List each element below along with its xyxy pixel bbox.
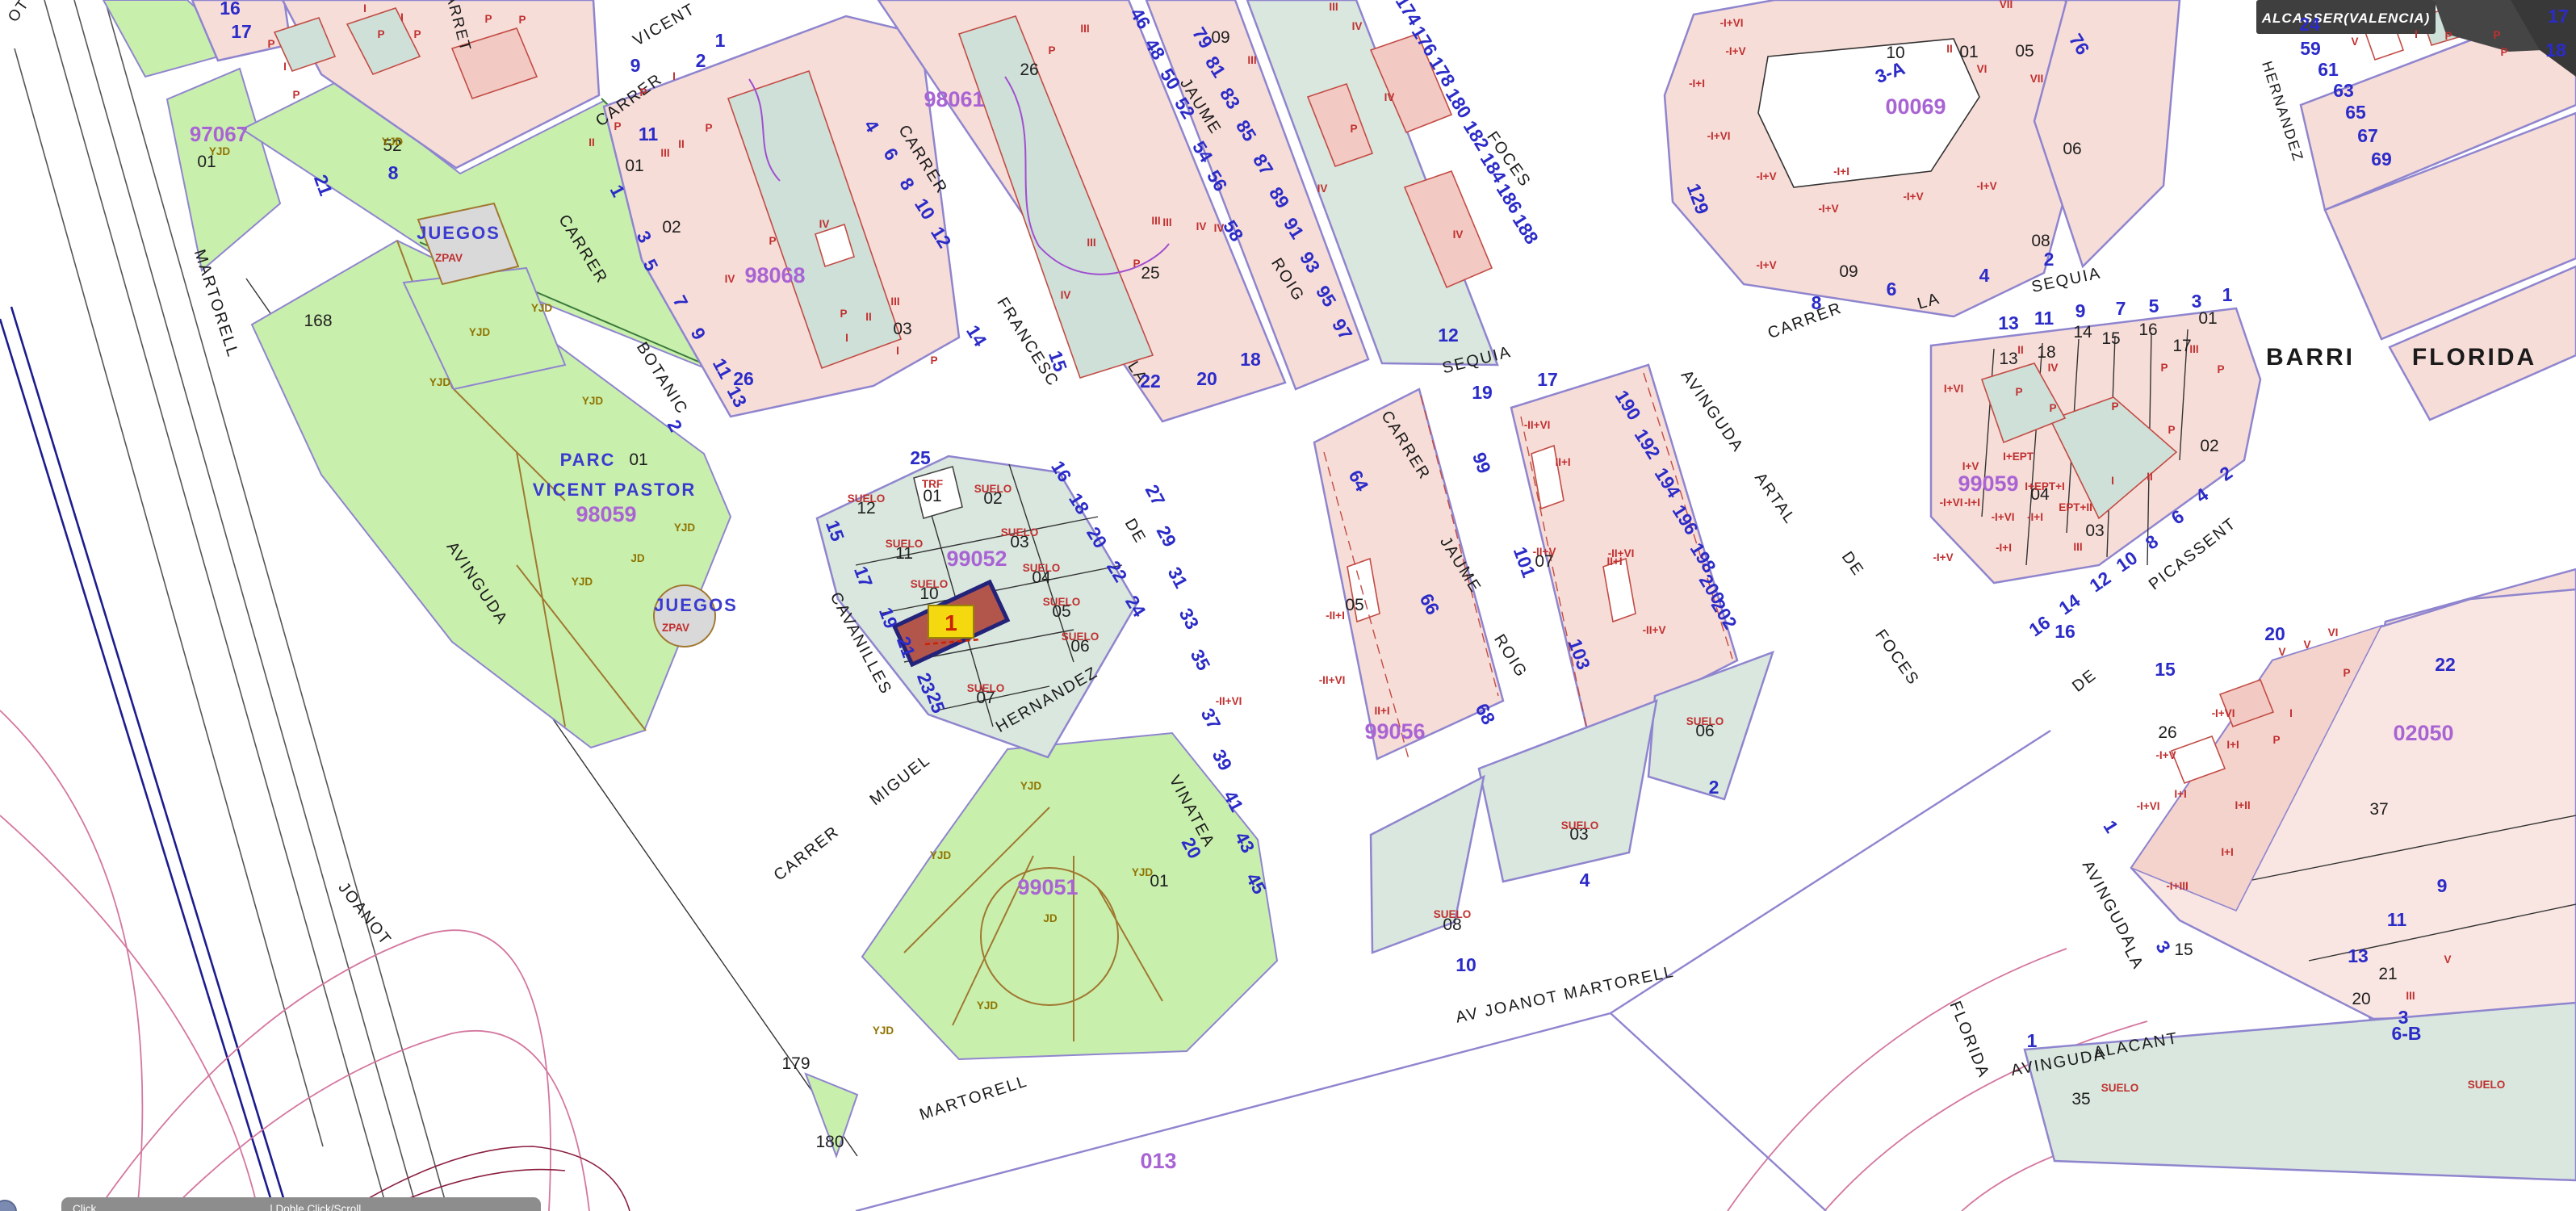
names-blue-label: JUEGOS (654, 595, 738, 615)
cadastral-map-canvas[interactable]: 1 ALCASSER(VALENCIA) CARRETMARTORELLAVIN… (0, 0, 2576, 1211)
landuse-red-label: TRF (922, 478, 943, 490)
landuse-red-label: I (2415, 28, 2418, 40)
hint-text-right: | Doble Click/Scroll (270, 1203, 361, 1211)
landuse-red-label: IV (1196, 220, 1207, 233)
landuse-red-label: -I+VI (1707, 130, 1731, 142)
numbers-blue-label: 26 (733, 368, 754, 389)
numbers-blue-label: 17 (231, 21, 252, 42)
numbers-blue-label: 59 (2300, 38, 2321, 59)
landuse-red-label: SUELO (1686, 715, 1724, 727)
numbers-blue-label: 8 (388, 162, 399, 183)
landuse-red-label: II+I (1555, 456, 1570, 468)
parcels-black-label: 168 (304, 312, 332, 330)
parcels-black-label: 179 (781, 1054, 810, 1073)
numbers-blue-label: 6-B (2391, 1023, 2421, 1044)
landuse-red-label: P (840, 308, 847, 320)
landuse-red-label: -II+VI (1319, 674, 1346, 686)
landuse-red-label: IV (1214, 222, 1225, 234)
streets-label: AVINGUDA (1678, 367, 1747, 456)
parcels-black-label: 15 (2101, 329, 2120, 348)
landuse-red-label: P (2168, 424, 2175, 436)
landuse-red-label: P (930, 354, 937, 367)
landuse-olive-label: JD (1043, 912, 1058, 924)
parcels-black-label: 26 (2158, 723, 2176, 742)
numbers-blue-label: 15 (2155, 659, 2176, 680)
landuse-red-label: -I+III (2166, 880, 2188, 892)
landuse-olive-label: YJD (572, 576, 593, 588)
numbers-blue-label: 69 (2371, 149, 2392, 170)
codes-purple-label: 99052 (946, 547, 1007, 571)
parcels-black-label: 10 (1886, 44, 1904, 62)
landuse-red-label: -I+VI (1992, 511, 2015, 523)
numbers-blue-label: 67 (2357, 125, 2378, 146)
streets-label: HERNANDEZ (2259, 59, 2306, 164)
numbers-blue-label: 27 (1141, 481, 1170, 509)
streets-label: DE (2069, 666, 2101, 696)
landuse-red-label: -I+I (1996, 542, 2012, 554)
landuse-red-label: III (2406, 990, 2415, 1002)
landuse-red-label: I+I (2221, 846, 2233, 858)
codes-purple-label: 99059 (1958, 471, 2018, 496)
numbers-blue-label: 24 (2299, 14, 2320, 35)
numbers-blue-label: 2 (696, 50, 706, 71)
landuse-olive-label: YJD (873, 1025, 894, 1037)
numbers-blue-label: 1 (715, 30, 726, 51)
streets-label: OT (5, 0, 33, 25)
landuse-red-label: -II+V (1533, 546, 1556, 558)
landuse-red-label: I (2111, 475, 2114, 487)
landuse-red-label: I+VI (1944, 383, 1963, 395)
numbers-blue-label: 2 (1709, 777, 1719, 798)
numbers-blue-label: 11 (639, 124, 659, 145)
numbers-blue-label: 4 (1580, 869, 1590, 890)
numbers-blue-label: 182 (1460, 117, 1493, 154)
landuse-red-label: -II+VI (1216, 695, 1242, 707)
parcels-black-label: 09 (1211, 28, 1229, 47)
landuse-red-label: I (400, 11, 404, 23)
parcels-black-label: 25 (1141, 264, 1159, 283)
landuse-red-label: SUELO (2468, 1079, 2506, 1091)
landuse-red-label: P (413, 28, 421, 40)
numbers-blue-label: 99 (1468, 450, 1495, 476)
numbers-blue-label: 16 (2055, 621, 2075, 642)
landuse-red-label: IV (725, 273, 735, 285)
numbers-blue-label: 10 (1456, 954, 1476, 975)
numbers-blue-label: 8 (1812, 292, 1822, 313)
streets-label: MIGUEL (867, 751, 934, 809)
landuse-red-label: VI (2328, 626, 2339, 639)
parcels-black-label: 37 (2369, 800, 2388, 819)
landuse-red-label: III (2073, 541, 2082, 553)
parcels-black-label: 180 (815, 1133, 844, 1151)
landuse-red-label: -I+V (1903, 191, 1923, 203)
landuse-red-label: P (484, 13, 492, 25)
streets-label: MARTORELL (917, 1072, 1030, 1124)
landuse-red-label: -I+VI (2212, 707, 2235, 719)
numbers-blue-label: 11 (2034, 308, 2055, 329)
landuse-red-label: -I+V (1756, 259, 1776, 271)
codes-purple-label: 99051 (1017, 875, 1078, 899)
landuse-olive-label: YJD (582, 395, 604, 407)
numbers-blue-label: 63 (2333, 80, 2354, 101)
landuse-red-label: III (2189, 343, 2198, 355)
landuse-olive-label: YJD (209, 145, 231, 157)
numbers-blue-label: 29 (1153, 522, 1181, 551)
landuse-red-label: -I+V (1818, 203, 1838, 215)
parcels-black-label: 08 (2031, 232, 2050, 250)
numbers-blue-label: 16 (220, 0, 241, 19)
landuse-red-label: P (1350, 123, 1357, 135)
parcels-black-label: 03 (2085, 522, 2104, 540)
landuse-red-label: P (2500, 46, 2507, 58)
numbers-blue-label: 37 (1197, 705, 1225, 733)
landuse-red-label: P (705, 122, 712, 134)
landuse-red-label: III (660, 147, 669, 159)
landuse-red-label: -I+VI (2137, 800, 2160, 812)
numbers-blue-label: 61 (2318, 59, 2339, 80)
suelo-parcel-03[interactable] (1479, 701, 1657, 882)
streets-label: PICASSENT (2146, 514, 2240, 593)
parcels-black-label: 13 (1999, 350, 2017, 368)
landuse-red-label: -II+VI (1524, 419, 1551, 431)
numbers-blue-label: 14 (962, 321, 991, 350)
landuse-red-label: SUELO (967, 682, 1005, 694)
selected-parcel-number: 1 (945, 610, 957, 635)
map-hint-tooltip: Click | Doble Click/Scroll (61, 1197, 541, 1211)
numbers-blue-label: 9 (630, 55, 641, 76)
numbers-blue-label: 7 (2116, 298, 2126, 319)
numbers-blue-label: 1 (2027, 1030, 2038, 1051)
landuse-olive-label: YJD (382, 136, 404, 148)
parcels-black-label: 15 (2174, 941, 2193, 959)
codes-purple-label: 013 (1140, 1149, 1176, 1173)
landuse-red-label: III (1329, 1, 1338, 13)
landuse-red-label: P (2444, 30, 2452, 42)
landuse-olive-label: YJD (429, 376, 451, 388)
landuse-red-label: P (2493, 29, 2500, 41)
landuse-red-label: III (1087, 237, 1095, 249)
parcels-black-label: 09 (1839, 262, 1858, 281)
streets-label: FRANCESC (993, 295, 1062, 391)
landuse-red-label: SUELO (1434, 908, 1472, 920)
parcels-black-label: 14 (2073, 323, 2092, 342)
numbers-blue-label: 65 (2345, 102, 2366, 123)
landuse-red-label: -II+V (1643, 624, 1666, 636)
landuse-red-label: -I+I (2027, 511, 2043, 523)
numbers-blue-label: 1 (2222, 284, 2233, 305)
landuse-olive-label: YJD (469, 326, 491, 338)
landuse-red-label: SUELO (1023, 562, 1061, 574)
landuse-red-label: -I+VI (1940, 497, 1963, 509)
numbers-blue-label: 19 (1472, 382, 1493, 403)
landuse-red-label: V (2278, 646, 2285, 658)
streets-label: FLORIDA (2412, 344, 2536, 371)
numbers-blue-label: 12 (2085, 567, 2114, 596)
landuse-red-label: I (672, 70, 676, 82)
landuse-red-label: I (896, 345, 899, 357)
landuse-red-label: P (614, 120, 621, 132)
streets-label: BARRI (2266, 344, 2355, 371)
landuse-red-label: IV (1384, 91, 1395, 103)
landuse-red-label: V (2444, 953, 2451, 966)
landuse-red-label: -I+V (1933, 551, 1953, 564)
landuse-red-label: P (769, 235, 776, 247)
codes-purple-label: 98061 (924, 87, 984, 111)
landuse-red-label: -I+VI (1720, 17, 1744, 29)
landuse-red-label: P (292, 89, 299, 101)
landuse-red-label: IV (1453, 228, 1464, 241)
numbers-blue-label: 6 (2168, 505, 2188, 529)
parcels-black-label: 16 (2138, 321, 2157, 339)
streets-label: CARRER (771, 823, 844, 885)
streets-label: FOCES (1871, 626, 1922, 689)
parcels-black-label: 01 (2198, 309, 2217, 328)
parcels-black-label: 01 (1959, 43, 1978, 61)
landuse-red-label: -I+V (1725, 45, 1745, 57)
landuse-olive-label: YJD (674, 522, 696, 534)
landuse-red-label: P (518, 14, 526, 26)
landuse-olive-label: YJD (1020, 780, 1042, 792)
parcels-black-label: 03 (893, 320, 911, 338)
names-blue-label: VICENT PASTOR (533, 480, 696, 500)
parcels-black-label: 26 (1020, 61, 1038, 79)
numbers-blue-label: 35 (1187, 646, 1215, 674)
landuse-red-label: V (2351, 36, 2358, 48)
streets-label: AV JOANOT MARTORELL (1454, 963, 1676, 1027)
landuse-red-label: IV (1061, 289, 1071, 301)
codes-purple-label: 99056 (1364, 719, 1425, 744)
numbers-blue-label: 13 (2348, 945, 2369, 966)
numbers-blue-label: 18 (1240, 349, 1261, 370)
landuse-red-label: P (639, 86, 647, 98)
numbers-blue-label: 25 (910, 447, 931, 468)
landuse-olive-label: YJD (977, 999, 999, 1012)
numbers-blue-label: 5 (2149, 295, 2159, 316)
landuse-red-label: SUELO (1561, 819, 1599, 832)
landuse-red-label: II (2017, 344, 2024, 356)
parcels-black-label: 06 (2063, 140, 2081, 158)
landuse-red-label: P (2160, 362, 2168, 374)
landuse-red-label: II+I (1374, 705, 1389, 717)
landuse-red-label: I+II (2235, 799, 2250, 811)
parcels-black-label: 21 (2378, 965, 2397, 983)
numbers-blue-label: 17 (1537, 369, 1558, 390)
numbers-blue-label: 33 (1175, 605, 1204, 633)
hint-text-left: Click (73, 1203, 96, 1211)
names-blue-label: JUEGOS (417, 223, 501, 243)
numbers-blue-label: 14 (2055, 589, 2084, 618)
landuse-red-label: SUELO (848, 492, 886, 505)
parcels-black-label: 05 (2015, 42, 2034, 61)
numbers-blue-label: 2 (2044, 249, 2055, 270)
streets-label: FLORIDA (1946, 999, 1993, 1081)
landuse-red-label: VII (2030, 73, 2044, 85)
landuse-red-label: SUELO (1062, 631, 1100, 643)
landuse-red-label: I+EPT (2003, 450, 2034, 463)
landuse-red-label: I (283, 61, 287, 73)
codes-purple-label: 98059 (576, 502, 636, 526)
numbers-blue-label: 13 (1998, 312, 2019, 333)
landuse-red-label: SUELO (1001, 526, 1039, 538)
landuse-red-label: SUELO (1043, 596, 1081, 608)
streets-label: VICENT (630, 0, 699, 50)
landuse-red-label: I+I (2174, 788, 2186, 800)
landuse-red-label: -I+I (1964, 497, 1980, 509)
numbers-blue-label: 4 (1979, 265, 1990, 286)
numbers-blue-label: 17 (2548, 6, 2569, 27)
landuse-olive-label: YJD (930, 849, 952, 861)
landuse-red-label: SUELO (886, 538, 924, 550)
streets-label: MARTORELL (191, 247, 242, 360)
landuse-red-label: -I+I (1689, 78, 1705, 90)
numbers-blue-label: 22 (2435, 654, 2456, 675)
landuse-red-label: -I+I (1833, 166, 1849, 178)
numbers-blue-label: 12 (1438, 325, 1459, 346)
landuse-red-label: I+I (2226, 739, 2239, 751)
numbers-blue-label: 22 (1140, 371, 1161, 392)
landuse-red-label: II (1946, 43, 1953, 55)
landuse-red-label: SUELO (911, 578, 949, 590)
numbers-blue-label: 9 (2075, 300, 2086, 321)
landuse-red-label: P (2049, 402, 2056, 414)
landuse-red-label: P (1133, 258, 1140, 270)
numbers-blue-label: 188 (1509, 211, 1543, 248)
names-blue-label: PARC (560, 450, 616, 470)
landuse-red-label: SUELO (974, 483, 1012, 495)
landuse-red-label: P (2111, 400, 2118, 413)
landuse-red-label: P (2272, 734, 2280, 746)
numbers-blue-label: 11 (2387, 909, 2407, 930)
landuse-red-label: III (890, 295, 899, 308)
landuse-red-label: III (1247, 54, 1256, 66)
landuse-red-label: II+I (1606, 555, 1622, 568)
landuse-red-label: III (1151, 215, 1160, 227)
landuse-red-label: VII (2000, 0, 2013, 10)
parcels-black-label: 35 (2071, 1090, 2090, 1108)
landuse-red-label: -I+V (1976, 180, 1996, 192)
streets-label: ARTAL (1751, 470, 1799, 528)
numbers-blue-label: 4 (2192, 484, 2213, 507)
numbers-blue-label: 31 (1164, 564, 1192, 592)
landuse-red-label: VI (1977, 63, 1987, 75)
parcels-black-label: 02 (2200, 437, 2218, 455)
parcels-black-label: 01 (629, 450, 647, 469)
numbers-blue-label: 9 (2437, 875, 2448, 896)
landuse-red-label: V (2303, 639, 2310, 651)
landuse-red-label: III (1162, 216, 1171, 228)
codes-purple-label: 02050 (2393, 721, 2453, 745)
streets-label: DE (1121, 516, 1150, 547)
landuse-red-label: I (845, 332, 848, 344)
landuse-red-label: -II+I (1326, 610, 1345, 622)
landuse-red-label: P (1048, 44, 1055, 57)
municipality-label: ALCASSER(VALENCIA) (2261, 10, 2430, 26)
numbers-blue-label: 6 (1887, 279, 1897, 300)
landuse-red-label: I+V (1962, 460, 1979, 472)
landuse-red-label: IV (819, 218, 830, 230)
streets-label: CARRER (1766, 300, 1845, 343)
landuse-red-label: I (363, 2, 367, 15)
numbers-blue-label: 3 (2151, 937, 2175, 957)
numbers-blue-label: 20 (1196, 368, 1217, 389)
numbers-blue-label: 16 (2025, 611, 2054, 640)
landuse-red-label: II (2147, 471, 2153, 483)
park-parcel-97067[interactable] (167, 69, 280, 270)
numbers-blue-label: 18 (2545, 40, 2566, 61)
landuse-red-label: P (2015, 386, 2022, 398)
landuse-red-label: SUELO (2101, 1082, 2139, 1094)
streets-label: DE (1838, 548, 1867, 580)
numbers-blue-label: 1 (2099, 816, 2122, 836)
parcels-black-label: 05 (1345, 596, 1363, 614)
landuse-red-label: -I+V (2155, 749, 2176, 761)
codes-purple-label: 97067 (190, 122, 248, 146)
landuse-red-label: ZPAV (435, 252, 463, 264)
landuse-red-label: III (1080, 23, 1089, 35)
codes-purple-label: 00069 (1885, 94, 1946, 119)
landuse-red-label: I (2289, 707, 2293, 719)
landuse-red-label: ZPAV (662, 622, 689, 634)
landuse-red-label: P (377, 28, 384, 40)
landuse-red-label: II (678, 138, 685, 150)
landuse-red-label: II (865, 311, 872, 323)
landuse-red-label: EPT+II (2059, 501, 2092, 513)
parcels-black-label: 20 (2352, 990, 2370, 1008)
landuse-red-label: IV (1352, 20, 1363, 32)
landuse-red-label: P (2217, 363, 2224, 375)
landuse-olive-label: YJD (531, 302, 553, 314)
parcels-black-label: 01 (625, 157, 643, 175)
parcels-black-label: 02 (662, 218, 681, 237)
streets-label: AVINGUDA (2079, 857, 2139, 950)
landuse-olive-label: YJD (1132, 866, 1154, 878)
landuse-red-label: P (267, 38, 274, 50)
suelo-parcel-08[interactable] (1371, 777, 1484, 953)
map-viewer: 1 ALCASSER(VALENCIA) CARRETMARTORELLAVIN… (0, 0, 2576, 1211)
landuse-red-label: II (589, 136, 595, 149)
landuse-red-label: -I+V (1756, 170, 1776, 182)
landuse-red-label: P (2343, 667, 2350, 679)
landuse-red-label: IV (2048, 362, 2059, 374)
codes-purple-label: 98068 (744, 263, 805, 287)
landuse-olive-label: JD (630, 552, 645, 564)
streets-label: JOANOT (334, 879, 395, 949)
numbers-blue-label: 20 (2264, 623, 2285, 644)
landuse-red-label: IV (1317, 182, 1328, 195)
parcels-black-label: 17 (2172, 337, 2191, 355)
landuse-red-label: I+EPT+I (2025, 480, 2065, 492)
numbers-blue-label: 39 (1208, 746, 1237, 774)
numbers-blue-label: 8 (2142, 530, 2163, 554)
parcels-black-label: 18 (2037, 343, 2055, 362)
